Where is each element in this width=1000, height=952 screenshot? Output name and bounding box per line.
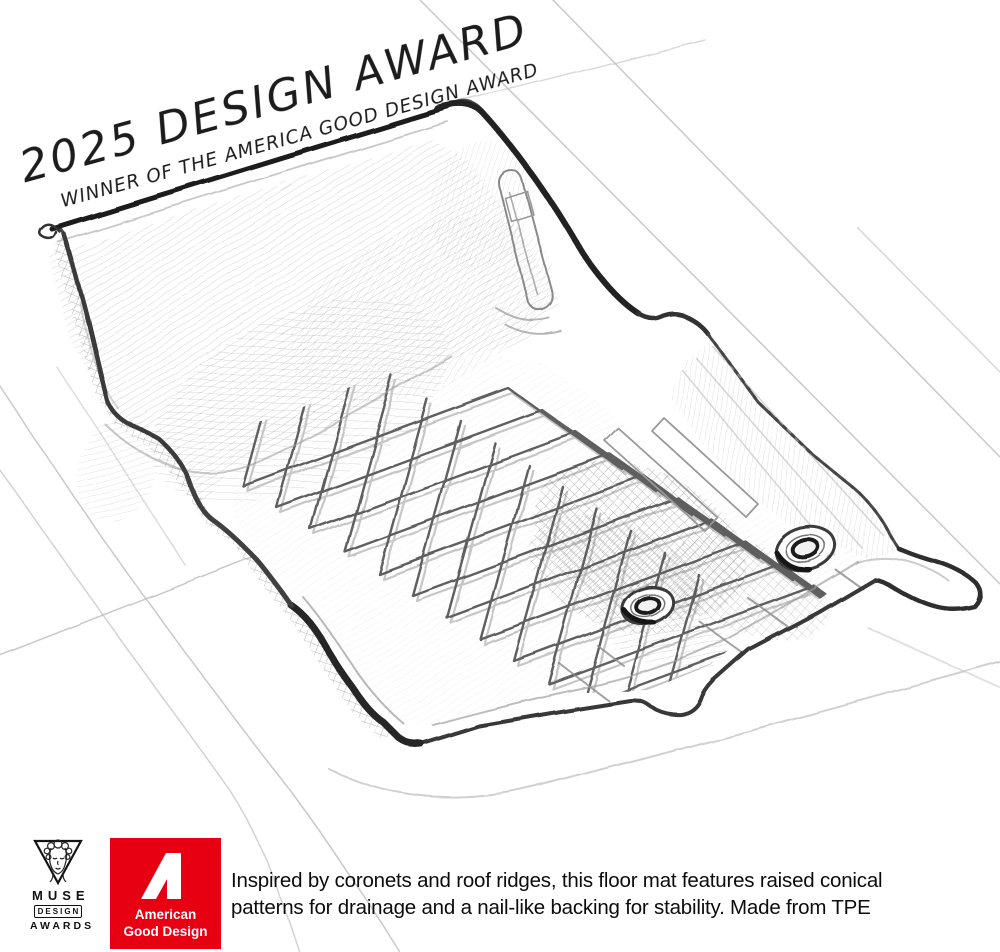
agd-line1: American — [110, 906, 221, 923]
american-good-design-logo: American Good Design — [110, 838, 221, 949]
description-line2: patterns for drainage and a nail-like ba… — [231, 895, 882, 922]
agd-a-icon — [111, 847, 221, 905]
muse-face-icon — [30, 838, 86, 886]
muse-word: MUSE — [27, 888, 89, 903]
product-image: 2025 DESIGN AWARD WINNER OF THE AMERICA … — [0, 0, 1000, 952]
muse-awards-word: AWARDS — [27, 920, 89, 932]
muse-design-word: DESIGN — [34, 905, 82, 918]
description-line1: Inspired by coronets and roof ridges, th… — [231, 868, 882, 895]
product-description: Inspired by coronets and roof ridges, th… — [231, 868, 882, 921]
agd-line2: Good Design — [110, 923, 221, 940]
muse-design-awards-logo: MUSE DESIGN AWARDS — [27, 838, 89, 932]
